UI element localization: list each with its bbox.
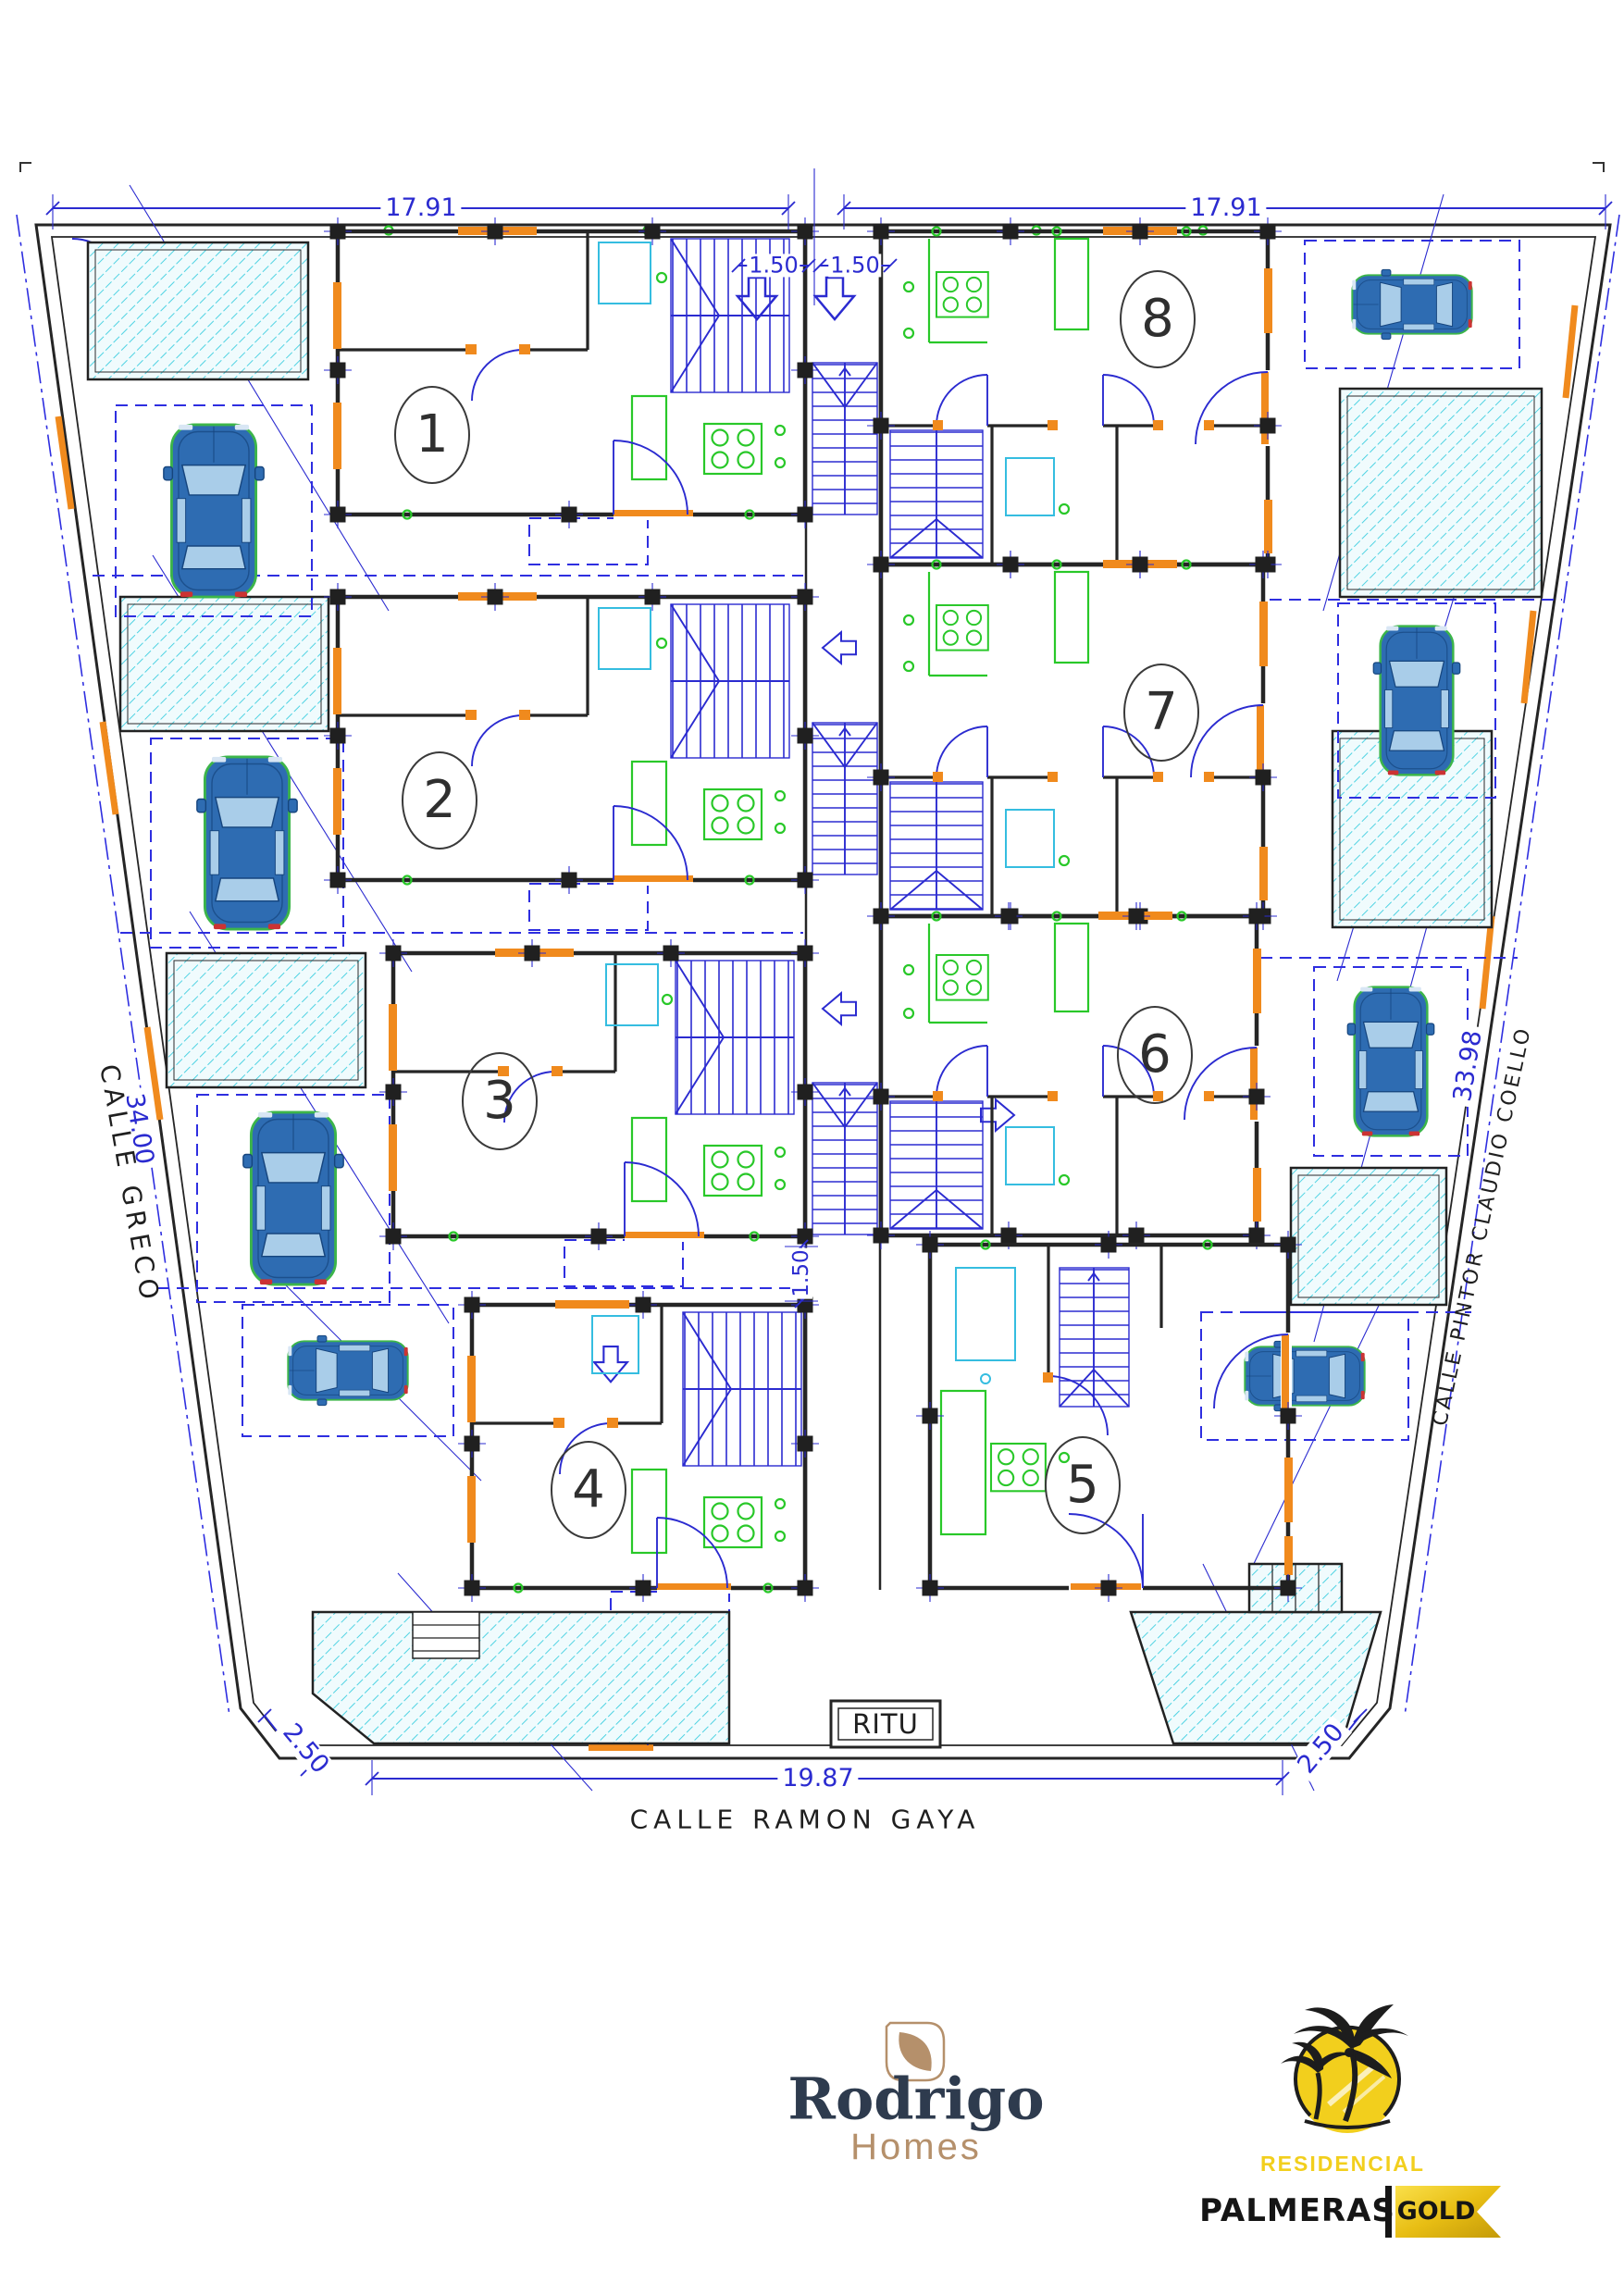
unit-1-plan (324, 217, 819, 528)
pool-unit-6 (1291, 1168, 1446, 1305)
dim-top-gap-right: 1.50 (828, 254, 881, 277)
dim-bottom-width: 19.87 (777, 1766, 858, 1792)
dim-mid-gap: 1.50 (790, 1247, 812, 1298)
unit-2-plan (324, 583, 819, 894)
rodrigo-homes-logo-subtitle: Homes (850, 2128, 982, 2166)
car-unit-5 (1245, 1341, 1364, 1410)
unit-7-label: 7 (1123, 664, 1199, 762)
pool-unit-1 (88, 242, 308, 379)
site-plan-drawing (0, 0, 1624, 2295)
unit-8-label: 8 (1120, 270, 1196, 368)
palmeras-residencial-label: RESIDENCIAL (1260, 2152, 1425, 2175)
car-unit-1 (164, 425, 264, 597)
unit-3-number: 3 (483, 1074, 516, 1129)
unit-7-plan (867, 551, 1277, 930)
street-label-calle-ramon-gaya: CALLE RAMON GAYA (630, 1805, 981, 1832)
unit-5-number: 5 (1066, 1458, 1099, 1513)
unit-5-plan (916, 1231, 1302, 1602)
dim-top-right-width: 17.91 (1185, 195, 1266, 221)
car-unit-7 (1373, 626, 1459, 775)
unit-6-label: 6 (1117, 1006, 1193, 1104)
ritu-label: RITU (852, 1710, 919, 1738)
unit-4-number: 4 (572, 1463, 605, 1518)
rodrigo-homes-logo-name: Rodrigo (787, 2068, 1044, 2128)
unit-3-plan (379, 939, 819, 1250)
dim-top-left-width: 17.91 (380, 195, 461, 221)
palmeras-name-label: PALMERAS (1199, 2195, 1395, 2228)
car-unit-2 (197, 757, 297, 929)
car-unit-3 (243, 1112, 343, 1284)
unit-8-plan (867, 217, 1282, 578)
unit-5-label: 5 (1045, 1436, 1121, 1534)
pool-bottom-right (1131, 1564, 1381, 1743)
unit-8-number: 8 (1141, 292, 1174, 347)
dim-top-gap-left: 1.50 (747, 254, 800, 277)
palm-sun-icon (1281, 2004, 1408, 2133)
unit-3-label: 3 (462, 1052, 538, 1150)
pool-unit-8 (1340, 389, 1542, 597)
unit-2-label: 2 (402, 751, 477, 850)
car-unit-6 (1347, 987, 1433, 1136)
unit-4-plan (458, 1291, 819, 1602)
unit-2-number: 2 (423, 774, 456, 828)
pool-unit-3 (167, 953, 366, 1087)
site-plan-sheet: 17.91 17.91 1.50 1.50 34.00 33.98 1.50 1… (0, 0, 1624, 2295)
unit-4-label: 4 (551, 1441, 626, 1539)
unit-6-plan (867, 902, 1271, 1249)
unit-7-number: 7 (1145, 686, 1178, 740)
pool-bottom-left (313, 1612, 729, 1743)
car-unit-8 (1352, 269, 1471, 339)
unit-1-label: 1 (394, 386, 470, 484)
palmeras-gold-badge: GOLD (1397, 2199, 1476, 2225)
unit-6-number: 6 (1138, 1028, 1172, 1083)
car-unit-4 (288, 1335, 407, 1405)
unit-1-number: 1 (415, 408, 449, 463)
